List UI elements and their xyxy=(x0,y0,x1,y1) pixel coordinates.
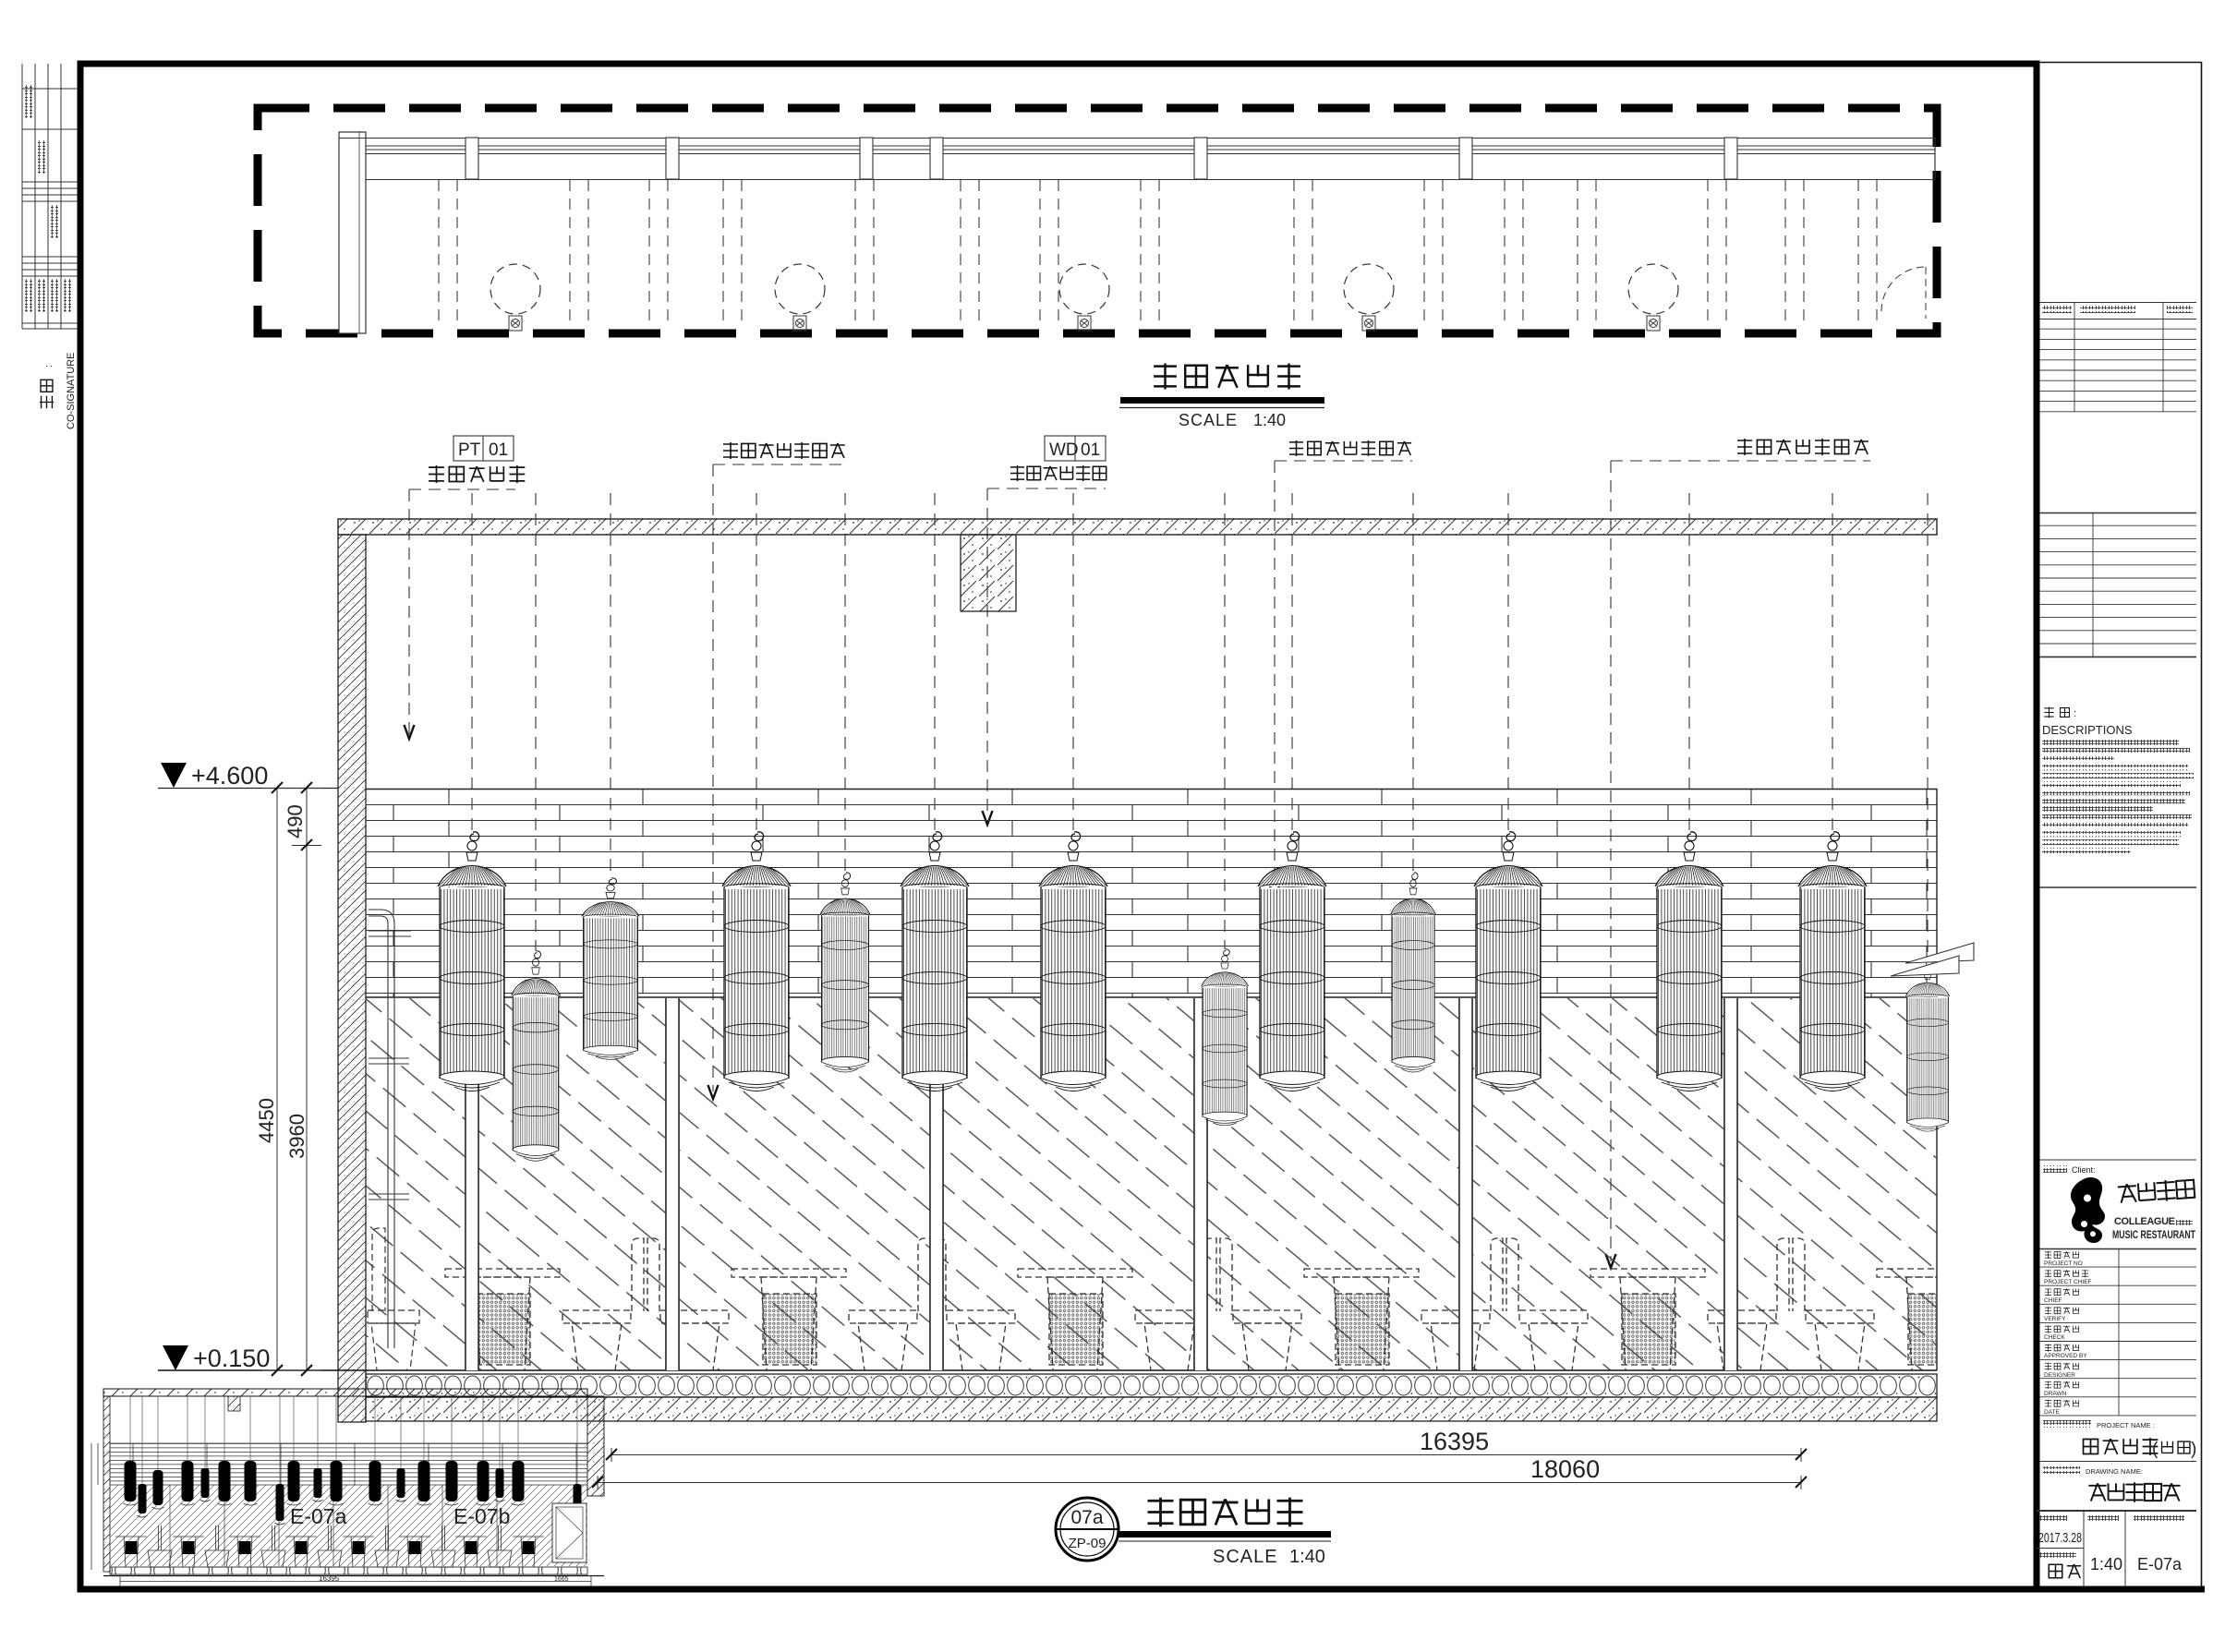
svg-text:SCALE: SCALE xyxy=(1179,411,1238,429)
svg-text:16395: 16395 xyxy=(1420,1428,1489,1455)
svg-text:VERIFY: VERIFY xyxy=(2044,1316,2066,1322)
svg-text:E-07a: E-07a xyxy=(2137,1555,2183,1574)
svg-text:+4.600: +4.600 xyxy=(191,762,268,790)
svg-text:3960: 3960 xyxy=(285,1114,308,1159)
svg-text:COLLEAGUE: COLLEAGUE xyxy=(2114,1216,2175,1227)
svg-text:DRAWING NAME:: DRAWING NAME: xyxy=(2086,1467,2143,1476)
svg-text:APPROVED BY: APPROVED BY xyxy=(2044,1353,2087,1359)
svg-text:DRAWN: DRAWN xyxy=(2044,1391,2067,1397)
svg-text:16395: 16395 xyxy=(319,1574,340,1583)
svg-text:DATE: DATE xyxy=(2044,1409,2061,1416)
svg-text:01: 01 xyxy=(1081,440,1100,460)
svg-text::: : xyxy=(2074,708,2076,719)
svg-text:PROJECT NAME :: PROJECT NAME : xyxy=(2097,1421,2155,1429)
svg-text:07a: 07a xyxy=(1070,1507,1103,1528)
svg-text:Client:: Client: xyxy=(2072,1165,2096,1175)
svg-text:4450: 4450 xyxy=(255,1098,278,1143)
svg-text:2017.3.28: 2017.3.28 xyxy=(2038,1530,2082,1546)
svg-text:1:40: 1:40 xyxy=(2090,1555,2122,1574)
svg-text:PT: PT xyxy=(458,440,481,460)
svg-text:18060: 18060 xyxy=(1530,1455,1600,1483)
svg-text:490: 490 xyxy=(284,804,307,838)
svg-text:+0.150: +0.150 xyxy=(193,1345,270,1372)
svg-text:PROJECT NO: PROJECT NO xyxy=(2044,1260,2083,1267)
svg-text:(: ( xyxy=(2152,1440,2158,1459)
svg-text:CHIEF: CHIEF xyxy=(2044,1297,2062,1304)
svg-text:DESCRIPTIONS: DESCRIPTIONS xyxy=(2042,723,2133,737)
svg-text:1:40: 1:40 xyxy=(1253,411,1286,429)
svg-text:SCALE: SCALE xyxy=(1213,1547,1278,1567)
svg-text:E-07b: E-07b xyxy=(453,1504,510,1528)
svg-text:): ) xyxy=(2191,1440,2196,1459)
svg-text:MUSIC RESTAURANT: MUSIC RESTAURANT xyxy=(2112,1230,2195,1241)
svg-text:CHECK: CHECK xyxy=(2044,1334,2065,1341)
svg-text:ZP-09: ZP-09 xyxy=(1069,1536,1106,1551)
svg-text:PROJECT CHIEF: PROJECT CHIEF xyxy=(2044,1279,2092,1285)
svg-text:DESIGNER: DESIGNER xyxy=(2044,1372,2075,1379)
svg-text:WD: WD xyxy=(1049,440,1079,460)
svg-text:01: 01 xyxy=(489,440,508,460)
svg-text:CO-SIGNATURE: CO-SIGNATURE xyxy=(66,352,77,429)
svg-text:1:40: 1:40 xyxy=(1289,1547,1325,1567)
svg-text:1665: 1665 xyxy=(554,1576,569,1583)
svg-text:E-07a: E-07a xyxy=(290,1504,347,1528)
svg-text::: : xyxy=(43,365,54,368)
